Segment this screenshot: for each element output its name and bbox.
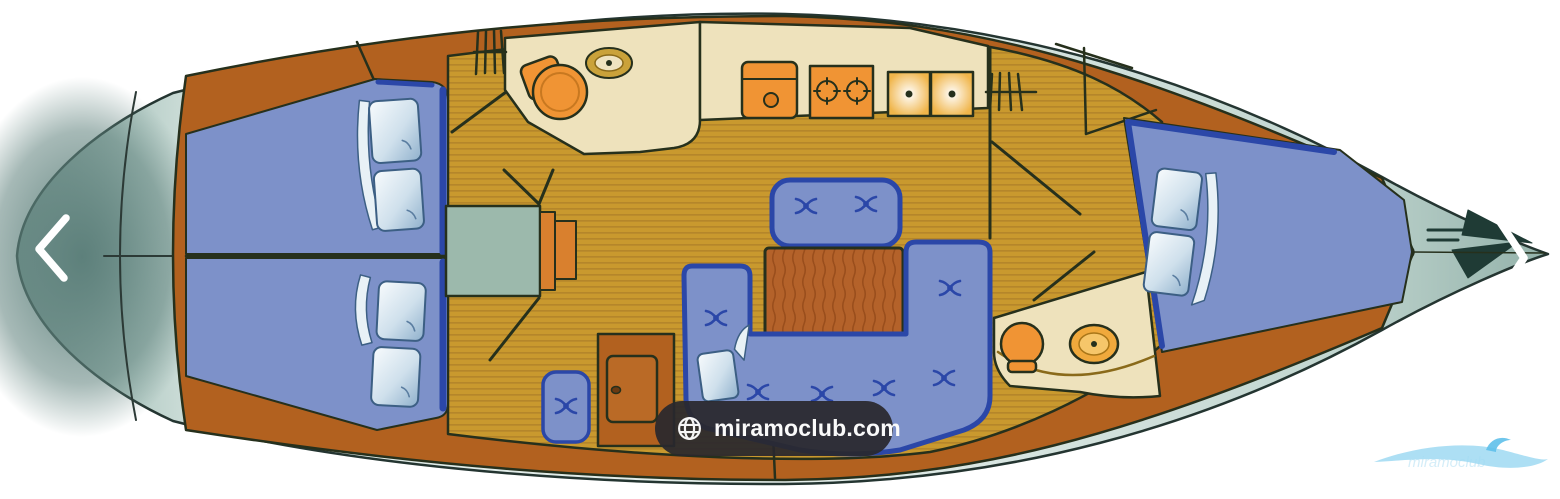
image-viewer: miramoclub.com miramoclub <box>0 0 1560 499</box>
chevron-right-icon <box>1486 206 1532 306</box>
galley-double-sink <box>888 72 973 116</box>
watermark-badge: miramoclub.com <box>655 401 893 456</box>
wave-swoosh-logo: miramoclub <box>1368 432 1560 487</box>
sink-forward <box>1070 325 1118 363</box>
stool-seat <box>543 372 589 442</box>
chevron-left-icon <box>28 208 72 290</box>
toilet-forward <box>1001 323 1043 372</box>
galley <box>700 22 988 120</box>
previous-image-button[interactable] <box>28 208 72 290</box>
companionway-steps <box>540 212 576 290</box>
watermark-text: miramoclub.com <box>714 415 901 442</box>
galley-icebox <box>742 62 797 118</box>
galley-stove <box>810 66 873 118</box>
companionway-engine-box <box>446 206 540 296</box>
next-image-button[interactable] <box>1486 206 1532 306</box>
island-bench <box>772 180 900 246</box>
saloon-table <box>765 248 903 342</box>
sink-aft <box>586 48 632 78</box>
globe-icon <box>676 415 703 442</box>
